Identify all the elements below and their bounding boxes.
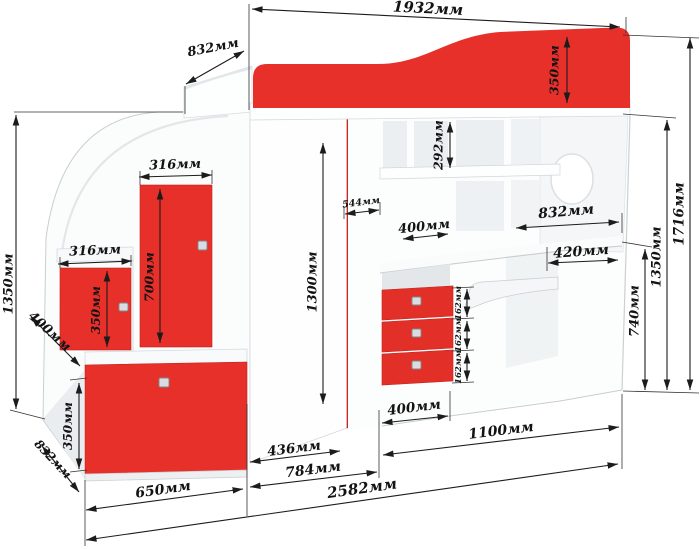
desk-drawer-1-handle[interactable] xyxy=(412,297,421,305)
ext-line xyxy=(623,35,699,38)
dim-wardrobe-full-depth-label: 784мм xyxy=(284,459,341,482)
dim-step-width-label: 650мм xyxy=(134,478,192,502)
lower-step-door-handle[interactable] xyxy=(119,303,128,311)
hutch-lower-niche-2 xyxy=(511,180,540,228)
furniture xyxy=(43,27,630,481)
dim-wardrobe-door-height-label: 1300мм xyxy=(306,252,321,313)
bed-headboard xyxy=(253,27,630,108)
dim-stairs-height: 1350мм xyxy=(2,115,17,409)
upper-step-door-handle[interactable] xyxy=(198,241,207,250)
dim-upper-door-height-label: 700мм xyxy=(141,252,156,302)
dim-overall-length-label: 2582мм xyxy=(325,474,398,502)
dim-desk-span-label: 1100мм xyxy=(468,419,535,443)
dim-step-width: 650мм xyxy=(86,478,243,510)
dim-underbed-height-label: 1350мм xyxy=(650,227,665,288)
bed-platform xyxy=(184,66,252,118)
ext-line xyxy=(10,410,45,419)
dim-overall-height-label: 1716мм xyxy=(672,182,688,245)
dim-platform-depth-label: 832мм xyxy=(186,36,240,61)
wardrobe-front-panel xyxy=(250,104,347,463)
dim-desk-height-label: 740мм xyxy=(628,285,643,337)
hutch-lower-niche-1 xyxy=(456,181,504,231)
stairs-big-drawer-handle[interactable] xyxy=(159,378,169,387)
dim-overall-height: 1716мм xyxy=(672,38,690,390)
dim-stairs-height-label: 1350мм xyxy=(2,254,17,315)
ext-line xyxy=(623,114,676,118)
dim-drawer-1-height-label: 162мм xyxy=(454,286,464,320)
hutch-niche-3 xyxy=(456,120,504,166)
loft-bed xyxy=(250,27,630,120)
dim-drawer-3-height-label: 162мм xyxy=(454,350,464,384)
dim-headboard-height-label: 350мм xyxy=(546,45,561,95)
dim-upper-door-width-label: 316мм xyxy=(149,157,201,174)
dim-lower-door-height-label: 350мм xyxy=(89,286,103,334)
desk-drawer-2-handle[interactable] xyxy=(412,329,421,337)
porthole-cutout xyxy=(551,154,593,204)
ext-line xyxy=(623,391,699,393)
dim-stairs-drawer-height-label: 350мм xyxy=(61,402,75,450)
under-desk-shade xyxy=(506,250,558,368)
dim-overall-width: 1932мм xyxy=(252,0,620,27)
dim-drawer-2-height-label: 162мм xyxy=(454,318,464,352)
hutch-niche-4 xyxy=(511,119,540,164)
hutch-niche-1 xyxy=(383,121,407,168)
dim-underbed-height: 1350мм xyxy=(650,120,667,390)
furniture-dimension-drawing: 1932мм 832мм 350мм 1716мм 1350мм 740мм 2… xyxy=(0,0,700,549)
dim-hutch-niche-height-label: 292мм xyxy=(430,120,445,171)
desk-section xyxy=(348,114,630,430)
dim-desk-span: 1100мм xyxy=(383,419,619,455)
dim-desk-height: 740мм xyxy=(628,249,645,390)
desk-drawer-3-handle[interactable] xyxy=(412,361,421,369)
dim-lower-door-width-label: 316мм xyxy=(69,242,121,259)
